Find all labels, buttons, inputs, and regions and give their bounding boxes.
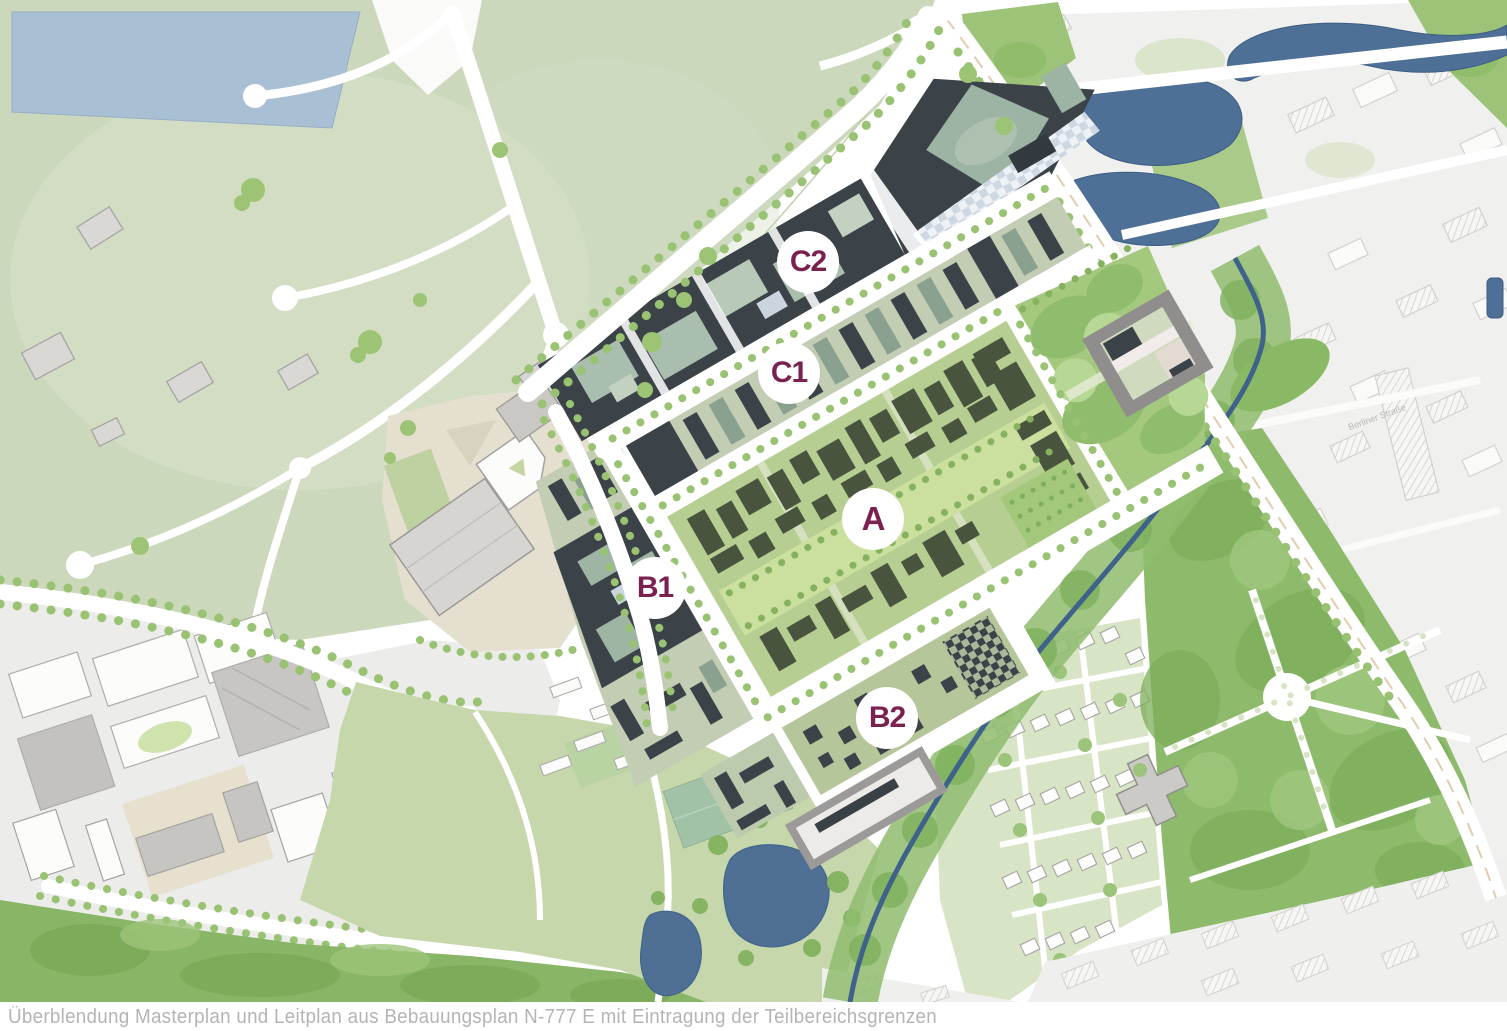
masterplan-figure: Berliner Straße	[0, 0, 1507, 1031]
zone-label-b1: B1	[624, 557, 686, 619]
masterplan-drawing: Berliner Straße	[0, 0, 1507, 1002]
water-basin	[12, 12, 360, 128]
zone-label-c2: C2	[777, 231, 839, 293]
masterplan-map: Berliner Straße	[0, 0, 1507, 1002]
zone-label-b1-text: B1	[637, 571, 673, 605]
zone-label-b2-text: B2	[869, 701, 905, 735]
zone-label-c2-text: C2	[790, 245, 826, 279]
zone-label-a: A	[842, 488, 904, 550]
map-caption: Überblendung Masterplan und Leitplan aus…	[8, 1006, 937, 1029]
zone-label-c1-text: C1	[771, 356, 807, 390]
zone-label-a-text: A	[862, 500, 885, 538]
zone-label-c1: C1	[758, 342, 820, 404]
zone-label-b2: B2	[856, 687, 918, 749]
